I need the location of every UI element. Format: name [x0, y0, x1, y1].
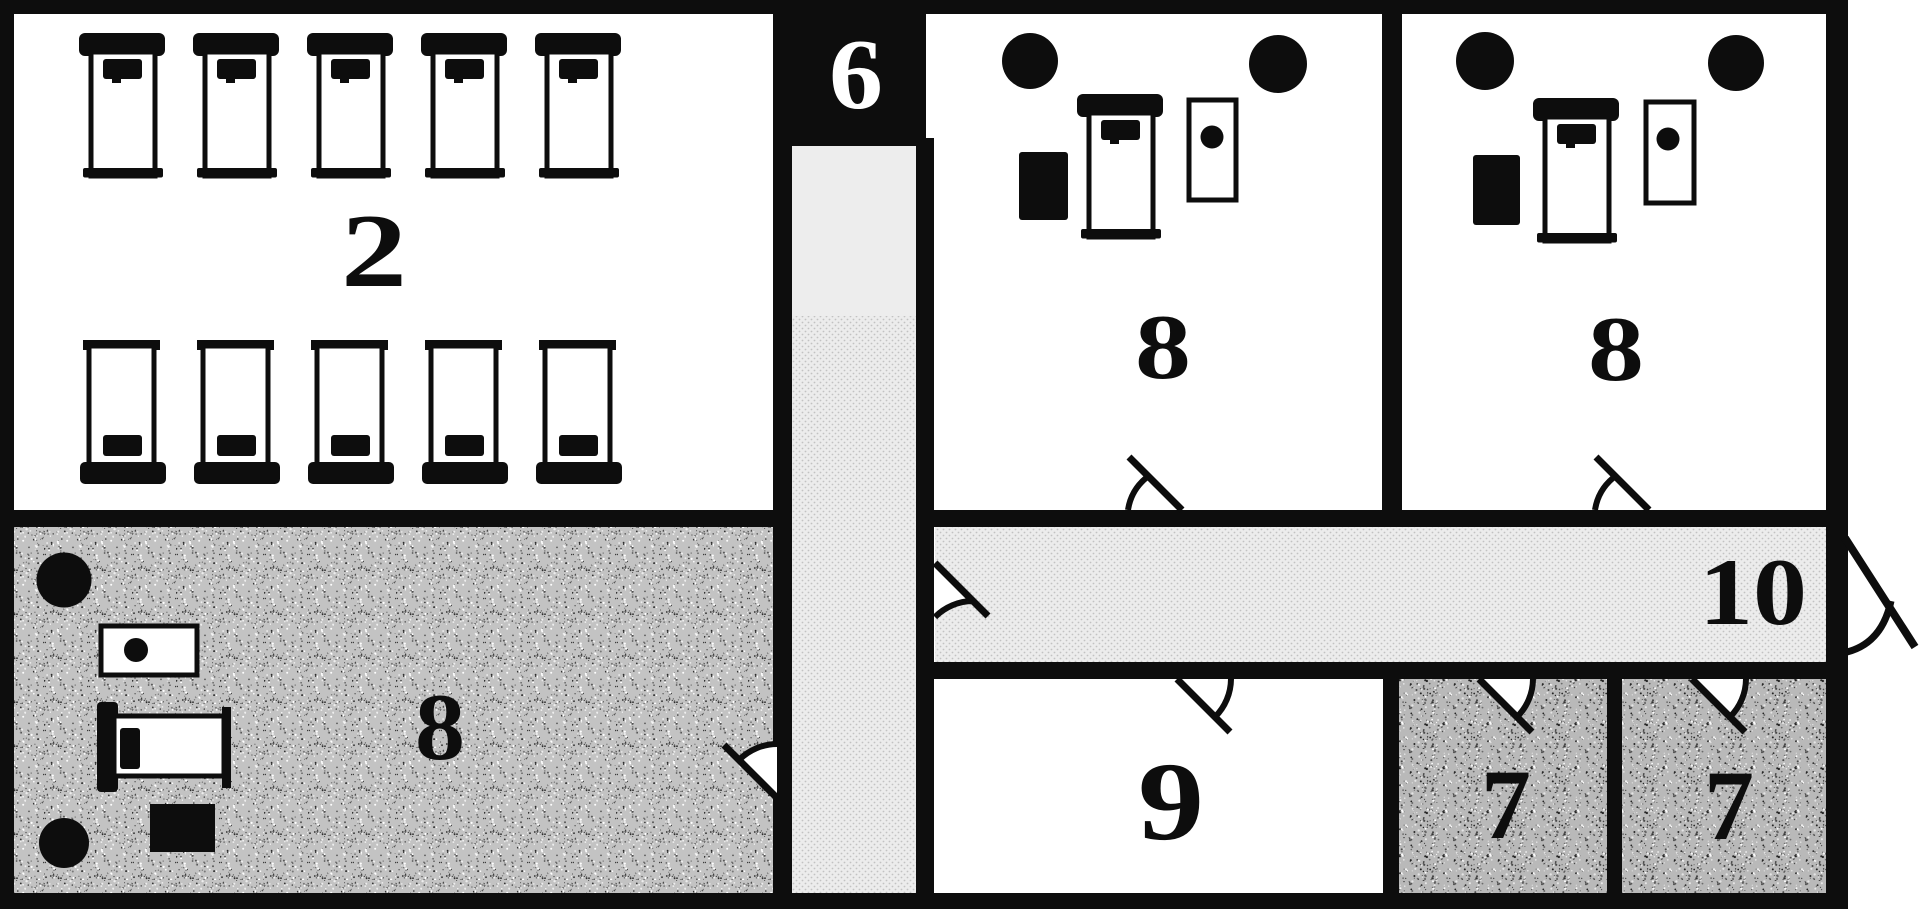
- svg-text:8: 8: [1588, 298, 1644, 400]
- svg-text:8: 8: [1135, 296, 1191, 398]
- svg-text:2: 2: [341, 192, 407, 309]
- svg-text:7: 7: [1704, 750, 1754, 861]
- svg-text:7: 7: [1481, 749, 1531, 860]
- svg-text:6: 6: [829, 18, 883, 130]
- svg-text:9: 9: [1138, 740, 1204, 864]
- svg-text:8: 8: [415, 674, 465, 780]
- svg-text:10: 10: [1699, 539, 1807, 645]
